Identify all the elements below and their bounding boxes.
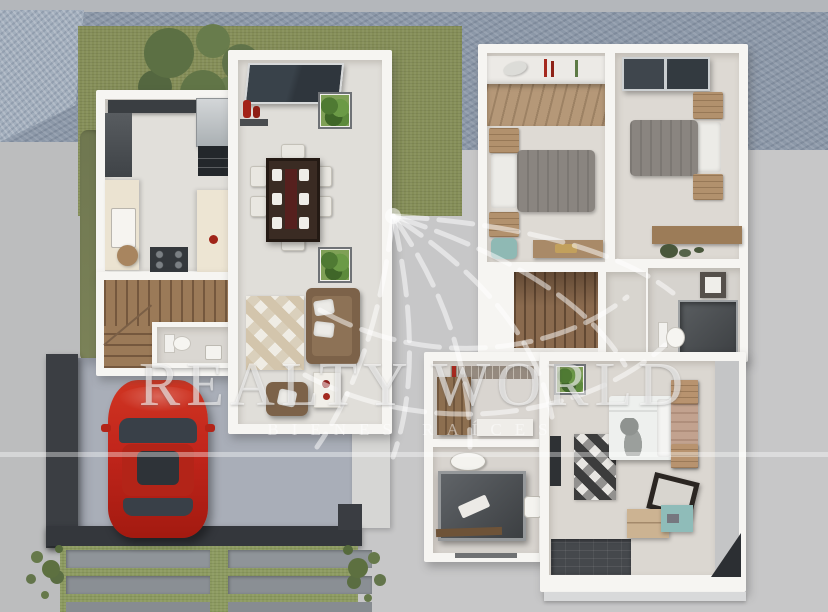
dining-chair <box>281 144 305 159</box>
dining-chair <box>250 166 267 187</box>
upper-cabinet-rail <box>108 100 196 113</box>
plant-leaves <box>321 95 349 126</box>
bed2-pillows <box>695 122 721 172</box>
skylight-mullion <box>664 59 667 89</box>
red-vase <box>243 100 251 118</box>
teal-box <box>661 505 693 532</box>
sidewalk-strip <box>0 0 828 12</box>
console-shelf <box>240 119 268 126</box>
nightstand <box>489 128 519 153</box>
red-vase <box>253 106 260 118</box>
bath-vanity <box>700 272 726 298</box>
kitchen-sink <box>111 208 136 248</box>
driveway-paver <box>66 576 210 594</box>
watermark-subtitle: BIENES RAÍCES <box>214 420 614 440</box>
plant-crate <box>318 92 352 129</box>
garage-side-wall <box>46 354 78 548</box>
watermark-brand: REALTY WORLD <box>114 350 714 421</box>
red-pot <box>209 235 218 244</box>
skylight-glass <box>622 57 710 91</box>
place-setting <box>299 169 309 181</box>
place-setting <box>272 169 282 181</box>
floor-plan-render: REALTY WORLD BIENES RAÍCES <box>0 0 828 612</box>
stove <box>150 247 188 272</box>
driveway-paver <box>228 576 372 594</box>
dark-floor-mat <box>551 539 631 575</box>
driveway-paver <box>228 602 372 612</box>
globe-logo-icon <box>265 185 695 485</box>
bed2-duvet <box>630 120 698 176</box>
watermark-line <box>0 452 828 457</box>
vanity-basin <box>705 277 721 293</box>
nightstand <box>693 174 723 200</box>
closet-shelf-items <box>487 56 605 84</box>
decor-red-stick <box>544 59 547 77</box>
vine-left <box>42 560 60 578</box>
driveway-paver <box>66 550 210 568</box>
car-rear-window <box>123 498 193 516</box>
decor-red-stick <box>551 61 554 77</box>
car-windshield <box>119 418 197 443</box>
gate-post <box>338 504 362 530</box>
teal-box-label <box>667 514 679 523</box>
closet-wood-deck <box>487 84 605 126</box>
driveway-paver <box>66 602 210 612</box>
corner-cabinet <box>105 113 132 177</box>
toilet-bowl <box>173 336 191 351</box>
nightstand <box>693 92 723 119</box>
wood-stool <box>117 245 138 266</box>
ground-stairs <box>104 280 236 326</box>
decor-bird <box>502 59 528 77</box>
vine-right <box>348 558 368 578</box>
car-mirror-left <box>101 424 111 432</box>
towel <box>458 494 491 518</box>
bath-door-mat <box>455 553 517 558</box>
driveway <box>60 546 358 612</box>
decor-green-stick <box>575 60 578 77</box>
front-step-ledge <box>544 592 746 601</box>
